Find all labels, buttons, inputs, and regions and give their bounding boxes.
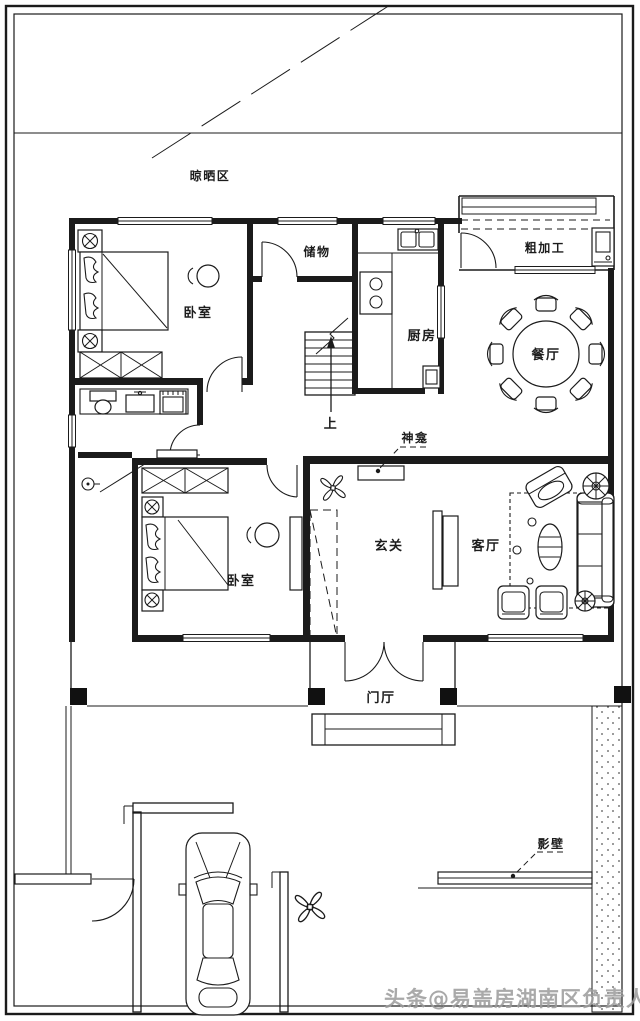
column bbox=[440, 688, 457, 705]
up-arrow bbox=[327, 336, 335, 412]
sofa bbox=[577, 493, 614, 607]
screen-wall bbox=[418, 852, 592, 888]
dining-chair bbox=[534, 397, 558, 413]
bedroom-upper-furniture bbox=[78, 230, 219, 378]
toilet bbox=[90, 391, 116, 414]
stairs bbox=[305, 318, 355, 412]
stairs-up-label: 上 bbox=[324, 417, 339, 432]
dining-chair bbox=[497, 376, 525, 404]
door-rough-processing bbox=[461, 233, 496, 268]
site-diagonal-line bbox=[152, 5, 390, 158]
dining-chair bbox=[568, 305, 596, 333]
window bbox=[69, 415, 76, 447]
window bbox=[118, 218, 212, 225]
rough-processing-room bbox=[459, 196, 614, 270]
dining-chair bbox=[497, 305, 525, 333]
shrine-console bbox=[358, 466, 404, 480]
room-label-rough-processing: 粗加工 bbox=[525, 240, 566, 255]
room-label-bedroom-lower: 卧室 bbox=[226, 573, 255, 589]
site-boundary bbox=[6, 6, 633, 1014]
living-room-furniture bbox=[498, 464, 614, 619]
coffee-table bbox=[538, 524, 562, 570]
stove bbox=[360, 272, 392, 314]
floor-plan-page: 晾晒区 卧室 储物 厨房 粗加工 餐厅 神龛 玄关 客厅 卧室 门厅 影壁 上 … bbox=[0, 0, 640, 1021]
nightstand-lamp bbox=[142, 497, 163, 517]
door-bedroom-upper bbox=[207, 357, 242, 392]
floor-plan-drawing: 晾晒区 卧室 储物 厨房 粗加工 餐厅 神龛 玄关 客厅 卧室 门厅 影壁 上 … bbox=[0, 0, 640, 1021]
nightstand-lamp bbox=[142, 590, 163, 611]
window bbox=[69, 250, 76, 330]
drying-area bbox=[14, 5, 622, 158]
plant-icon bbox=[295, 892, 324, 921]
nightstand-lamp bbox=[78, 330, 102, 352]
entry-steps bbox=[312, 714, 455, 745]
room-label-storage: 储物 bbox=[303, 244, 330, 259]
room-label-screen-wall: 影壁 bbox=[537, 836, 564, 851]
bathroom-sink bbox=[126, 391, 154, 412]
plant-icon bbox=[583, 473, 609, 499]
armchair bbox=[498, 586, 529, 619]
dining-chair bbox=[568, 376, 596, 404]
canopy bbox=[462, 198, 596, 214]
wardrobe bbox=[80, 352, 162, 378]
window bbox=[183, 635, 270, 642]
window bbox=[383, 218, 435, 225]
desk bbox=[290, 517, 302, 590]
room-label-bedroom-upper: 卧室 bbox=[183, 305, 212, 321]
armchair bbox=[536, 586, 567, 619]
column bbox=[70, 688, 87, 705]
car bbox=[179, 833, 257, 1015]
room-label-drying-area: 晾晒区 bbox=[190, 168, 231, 183]
door-bedroom-lower bbox=[267, 465, 297, 497]
prep-sink bbox=[592, 228, 614, 266]
window bbox=[488, 635, 583, 642]
window bbox=[515, 267, 595, 274]
chaise-chair bbox=[524, 464, 574, 509]
dining-chair bbox=[534, 296, 558, 312]
window bbox=[278, 218, 337, 225]
column bbox=[614, 686, 631, 703]
room-label-dining: 餐厅 bbox=[530, 347, 560, 363]
courtyard-gate bbox=[15, 874, 134, 921]
column bbox=[308, 688, 325, 705]
stair-break-line bbox=[316, 318, 348, 354]
plant-icon bbox=[321, 476, 345, 500]
room-label-foyer: 玄关 bbox=[374, 538, 403, 554]
foyer-cabinet-dashed bbox=[310, 510, 337, 638]
nightstand-lamp bbox=[78, 230, 102, 252]
bathroom-fixtures bbox=[80, 389, 188, 414]
watermark: 头条@易盖房湖南区负责人 bbox=[384, 987, 640, 1011]
room-label-kitchen: 厨房 bbox=[407, 328, 436, 344]
room-label-shrine: 神龛 bbox=[401, 430, 428, 445]
wardrobe bbox=[142, 468, 228, 493]
plant-icon bbox=[575, 591, 595, 611]
hall-cabinet bbox=[157, 450, 197, 458]
garage bbox=[124, 803, 325, 1015]
side-yard bbox=[82, 462, 148, 492]
side-table-chair bbox=[188, 265, 219, 287]
gravel-path-strip bbox=[592, 706, 622, 1012]
bed bbox=[80, 252, 168, 330]
floor-drain bbox=[82, 478, 100, 490]
room-label-living: 客厅 bbox=[471, 538, 500, 554]
washing-machine bbox=[160, 391, 186, 414]
hall-sideboard bbox=[433, 511, 458, 589]
kitchen-appliance bbox=[423, 366, 440, 388]
dining-chair bbox=[589, 342, 605, 366]
dining-chair bbox=[488, 342, 504, 366]
room-label-door-hall: 门厅 bbox=[366, 690, 395, 706]
bed bbox=[142, 517, 228, 590]
door-storage bbox=[262, 242, 297, 277]
kitchen-sink bbox=[398, 229, 438, 250]
window bbox=[438, 286, 445, 338]
kitchen-fixtures bbox=[358, 229, 440, 388]
side-table-chair bbox=[247, 523, 279, 547]
main-entrance-double-door bbox=[345, 642, 423, 681]
